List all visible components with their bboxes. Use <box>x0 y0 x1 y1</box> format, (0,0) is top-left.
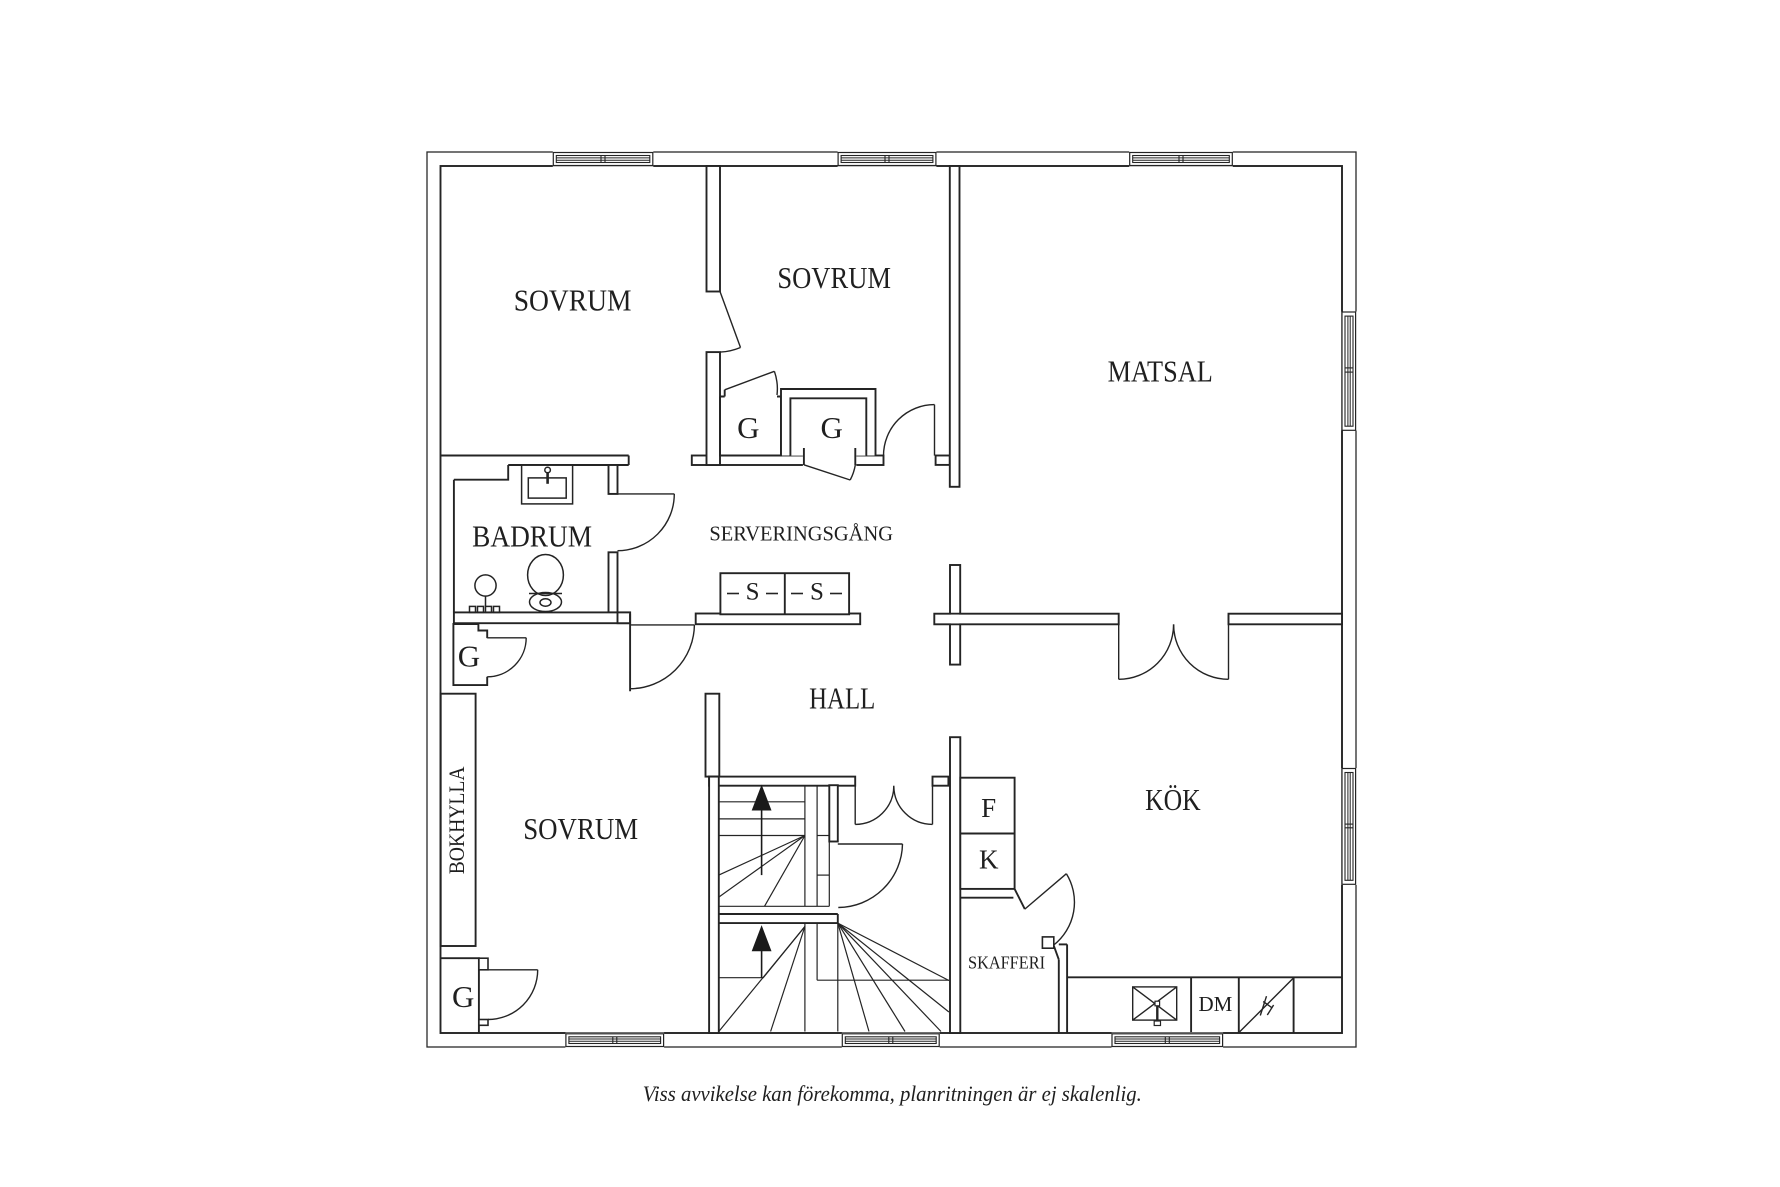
svg-text:G: G <box>452 979 474 1014</box>
svg-text:BOKHYLLA: BOKHYLLA <box>444 766 469 874</box>
svg-text:S: S <box>810 579 824 606</box>
svg-text:DM: DM <box>1198 992 1232 1016</box>
svg-text:SOVRUM: SOVRUM <box>523 811 638 846</box>
svg-text:S: S <box>746 579 760 606</box>
svg-text:G: G <box>458 638 480 673</box>
svg-text:SKAFFERI: SKAFFERI <box>968 952 1045 972</box>
svg-text:SERVERINGSGÅNG: SERVERINGSGÅNG <box>709 521 893 545</box>
svg-text:F: F <box>981 793 996 823</box>
svg-text:G: G <box>821 410 843 445</box>
svg-text:SOVRUM: SOVRUM <box>514 282 632 317</box>
svg-text:KÖK: KÖK <box>1145 782 1201 817</box>
svg-text:MATSAL: MATSAL <box>1108 354 1213 389</box>
svg-text:Viss avvikelse kan förekomma,: Viss avvikelse kan förekomma, planritnin… <box>643 1081 1142 1106</box>
svg-text:K: K <box>979 845 999 875</box>
svg-text:SOVRUM: SOVRUM <box>777 260 891 295</box>
svg-text:HALL: HALL <box>809 681 875 716</box>
svg-text:BADRUM: BADRUM <box>472 519 592 554</box>
svg-text:G: G <box>737 410 759 445</box>
